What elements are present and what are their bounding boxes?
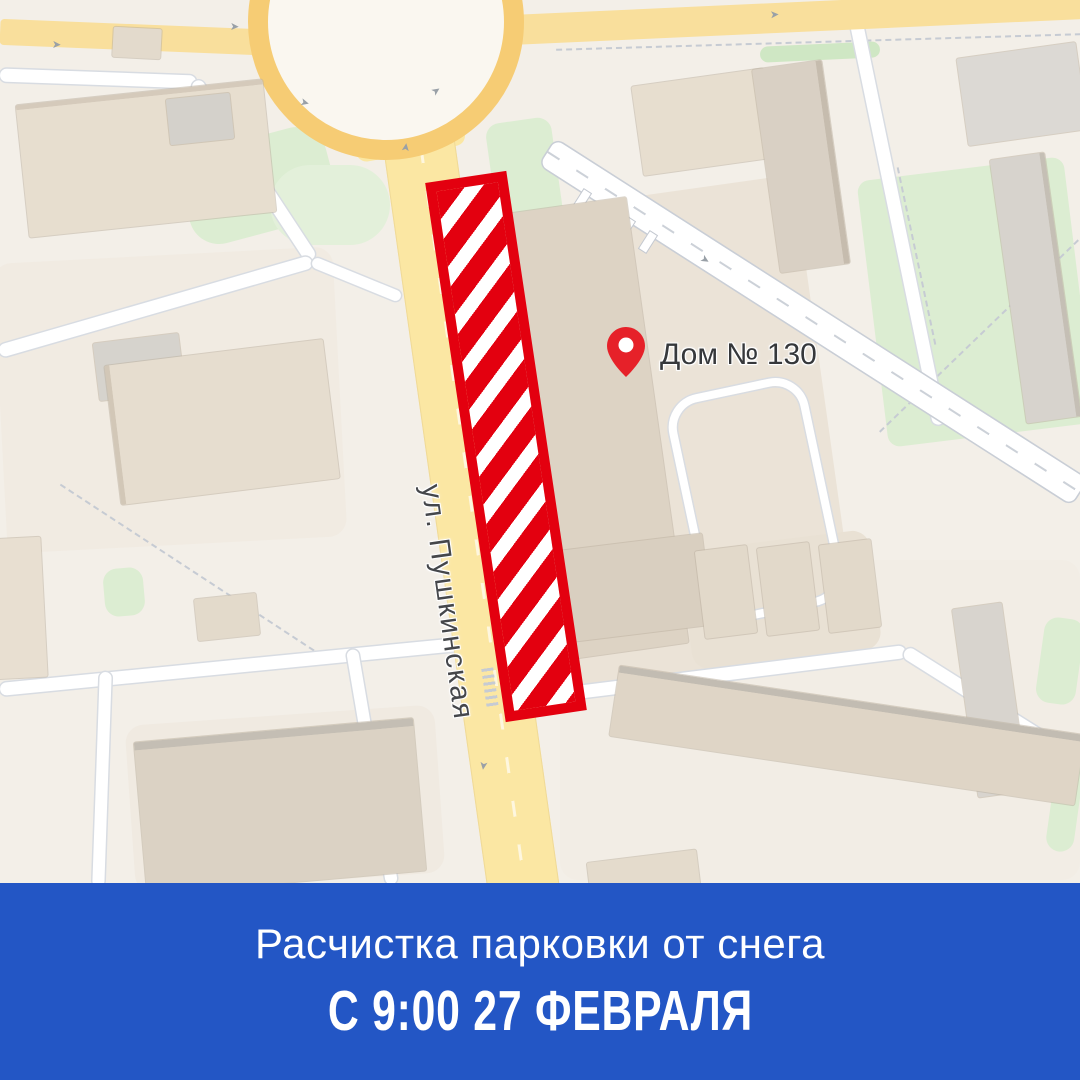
road-arrow-icon: ➤ bbox=[52, 40, 62, 51]
map-canvas: ➤ ➤ ➤ ➤ ➤ ➤ ➤ ➤ ➤ ул. Пушкинская Дом № 1… bbox=[0, 0, 1080, 883]
building bbox=[0, 537, 48, 680]
building bbox=[134, 718, 426, 883]
building bbox=[104, 339, 339, 505]
house-label: Дом № 130 bbox=[660, 338, 817, 372]
banner-title: Расчистка парковки от снега bbox=[255, 920, 825, 968]
road-arrow-icon: ➤ bbox=[477, 760, 489, 771]
location-pin-icon bbox=[606, 326, 646, 378]
building bbox=[112, 27, 162, 59]
building bbox=[757, 542, 819, 636]
building bbox=[695, 545, 757, 639]
green-area bbox=[102, 566, 146, 617]
road-arrow-icon: ➤ bbox=[401, 142, 413, 153]
road-arrow-icon: ➤ bbox=[770, 10, 780, 21]
building bbox=[555, 533, 713, 642]
building bbox=[16, 79, 277, 237]
road-arrow-icon: ➤ bbox=[230, 22, 240, 33]
announcement-banner: Расчистка парковки от снега С 9:00 27 ФЕ… bbox=[0, 883, 1080, 1080]
road bbox=[0, 637, 469, 696]
building bbox=[819, 539, 881, 633]
building bbox=[194, 593, 260, 641]
building bbox=[956, 42, 1080, 146]
banner-subtitle: С 9:00 27 ФЕВРАЛЯ bbox=[327, 978, 752, 1044]
road bbox=[0, 69, 196, 89]
road bbox=[92, 672, 111, 883]
road-main bbox=[468, 0, 1080, 47]
building bbox=[166, 93, 234, 145]
